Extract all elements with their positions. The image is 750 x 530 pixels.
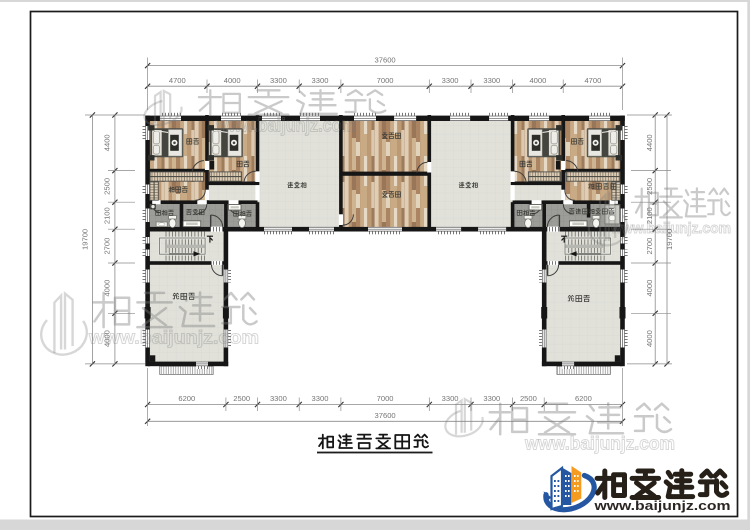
svg-text:2500: 2500 xyxy=(102,178,111,195)
svg-text:4700: 4700 xyxy=(584,76,601,85)
svg-text:7000: 7000 xyxy=(377,394,394,403)
svg-text:4000: 4000 xyxy=(645,330,654,347)
svg-text:4000: 4000 xyxy=(224,76,241,85)
svg-text:7000: 7000 xyxy=(377,76,394,85)
svg-text:2700: 2700 xyxy=(102,238,111,255)
svg-text:2500: 2500 xyxy=(233,394,250,403)
svg-text:3300: 3300 xyxy=(483,394,500,403)
svg-text:3300: 3300 xyxy=(270,394,287,403)
svg-text:www.baijunjz.com: www.baijunjz.com xyxy=(88,327,259,348)
svg-text:3300: 3300 xyxy=(312,76,329,85)
svg-text:4400: 4400 xyxy=(102,134,111,151)
svg-text:2500: 2500 xyxy=(520,394,537,403)
svg-text:3300: 3300 xyxy=(312,394,329,403)
svg-text:37600: 37600 xyxy=(375,55,396,64)
svg-text:4400: 4400 xyxy=(645,134,654,151)
svg-text:www.baijunjz.com: www.baijunjz.com xyxy=(215,114,356,136)
svg-text:3300: 3300 xyxy=(483,76,500,85)
svg-text:2100: 2100 xyxy=(102,207,111,224)
svg-text:4700: 4700 xyxy=(169,76,186,85)
svg-text:www.baijunjz.com: www.baijunjz.com xyxy=(524,433,675,454)
svg-text:3300: 3300 xyxy=(442,76,459,85)
svg-text:www.baijunjz.com: www.baijunjz.com xyxy=(610,221,731,237)
svg-text:4000: 4000 xyxy=(529,76,546,85)
svg-text:3300: 3300 xyxy=(270,76,287,85)
svg-text:37600: 37600 xyxy=(375,411,396,420)
svg-text:6200: 6200 xyxy=(178,394,195,403)
svg-text:4000: 4000 xyxy=(645,280,654,297)
svg-text:2700: 2700 xyxy=(645,238,654,255)
svg-text:6200: 6200 xyxy=(575,394,592,403)
svg-text:19700: 19700 xyxy=(81,229,90,250)
svg-text:3300: 3300 xyxy=(442,394,459,403)
svg-text:www.baijunjz.com: www.baijunjz.com xyxy=(593,499,730,513)
